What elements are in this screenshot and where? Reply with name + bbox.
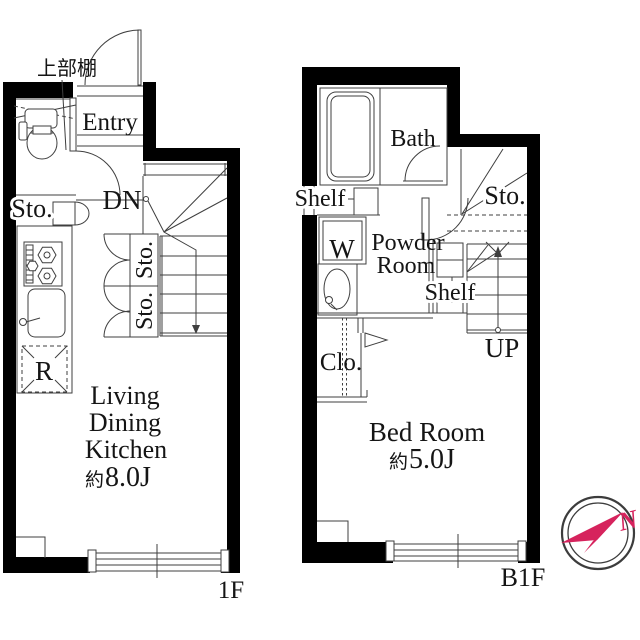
stair-path-start-b1f — [496, 328, 501, 333]
ldk-step — [16, 537, 45, 558]
floor-label-1f: 1F — [218, 577, 244, 604]
bedroom-size-prefix: 約 — [389, 451, 408, 473]
compass-north-label: N — [614, 504, 640, 537]
ldk-name-line1: Living — [90, 381, 159, 410]
floor-plan-b1f: Bath Shelf W Powder Room Sto. Shelf UP C… — [295, 67, 546, 592]
powder-room-line2: Room — [377, 253, 436, 279]
compass: N — [561, 497, 640, 569]
stair-storage-lower-label: Sto. — [132, 292, 158, 330]
shelf-left-label: Shelf — [295, 186, 346, 212]
bath-label: Bath — [390, 126, 435, 152]
entry-label: Entry — [82, 109, 138, 136]
stair-path-start — [144, 197, 149, 202]
compass-needle-upper — [561, 512, 623, 543]
window-1f — [88, 544, 229, 578]
winder-lines — [164, 168, 227, 232]
understair-storage-label: Sto. — [484, 181, 525, 210]
toilet — [19, 109, 57, 159]
bedroom-label: Bed Room — [369, 417, 485, 447]
closet-door-mark — [365, 333, 387, 347]
floor-plan-page: 上部棚 Entry DN Sto. Sto. Sto. R Living Din… — [0, 0, 640, 640]
floor-plan-1f: 上部棚 Entry DN Sto. Sto. Sto. R Living Din… — [3, 30, 244, 604]
bedroom-step — [317, 521, 348, 542]
bedroom-north-wall — [317, 313, 467, 333]
washer-label: W — [329, 234, 355, 264]
floor-label-b1f: B1F — [501, 563, 546, 592]
upper-shelf-label: 上部棚 — [37, 57, 97, 80]
stair-storage-upper-label: Sto. — [132, 241, 158, 279]
dn-label: DN — [103, 185, 142, 215]
ldk-name-line2: Dining — [89, 408, 161, 437]
stove — [24, 242, 62, 286]
up-label: UP — [485, 333, 520, 363]
bedroom-size-value: 5.0J — [409, 444, 455, 475]
ldk-size-value: 8.0J — [105, 462, 151, 493]
hall-storage — [53, 202, 89, 225]
entry-door-leaf — [138, 30, 141, 85]
washbasin — [318, 264, 357, 315]
storage-label-1f: Sto. — [11, 194, 52, 223]
shelf-stair-label: Shelf — [425, 280, 476, 306]
closet-label: Clo. — [320, 349, 362, 376]
ldk-size-prefix: 約 — [85, 469, 104, 491]
refrigerator-label: R — [35, 356, 53, 386]
ldk-name-line3: Kitchen — [85, 435, 167, 464]
